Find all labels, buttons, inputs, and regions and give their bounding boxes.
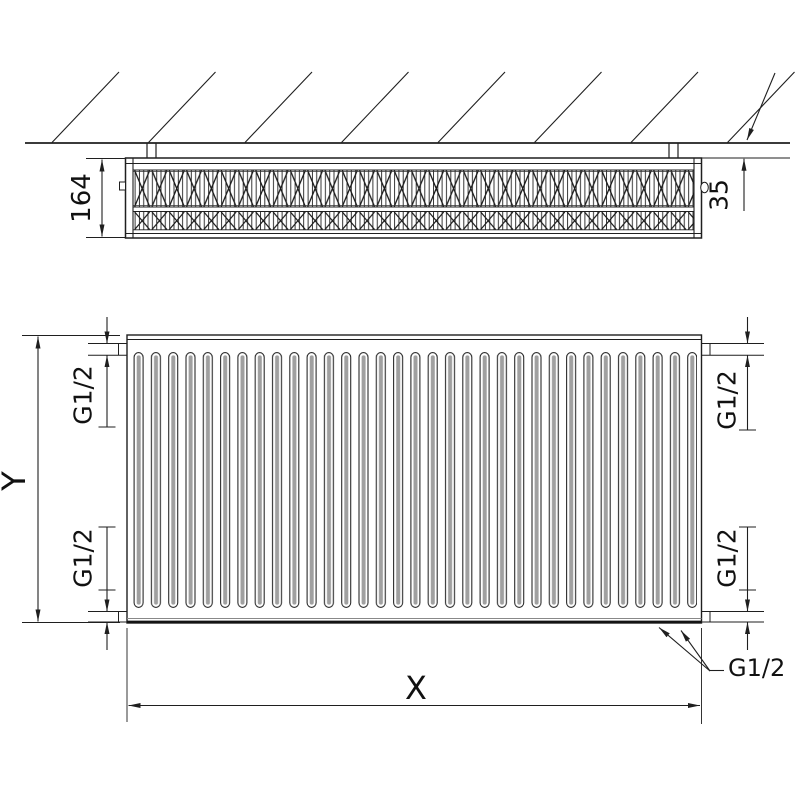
connection-label-top-left: G1/2 (71, 365, 96, 425)
connection-label-bottom-left: G1/2 (71, 528, 96, 588)
connection-label-top-right: G1/2 (715, 370, 740, 430)
fin-row-lower (134, 212, 695, 230)
callout-arrow-2 (681, 631, 710, 672)
radiator-technical-drawing: 164 35 G1/2 G1/2 G1/2 G1/2 Y X G1/2 (0, 0, 800, 800)
radiator-front-panel (127, 335, 702, 623)
bracket-right (669, 143, 678, 158)
wall-clearance-dimension-label: 35 (707, 179, 732, 211)
top-plan-view (25, 72, 795, 238)
connection-label-bottom-right: G1/2 (715, 528, 740, 588)
radiator-plan-body (120, 158, 709, 238)
g12-dimension-top-right (739, 317, 756, 430)
g12-dimension-bottom-right (739, 527, 756, 650)
upper-leader-arrow (747, 73, 775, 140)
callout-arrow-1 (659, 628, 710, 672)
fin-row-upper (134, 171, 695, 207)
stub-bottom-left (88, 612, 127, 623)
wall-brackets (147, 143, 678, 158)
drawing-linework (0, 0, 800, 800)
g12-bottom-connections-callout (659, 628, 724, 672)
wall-section (25, 72, 795, 143)
width-axis-label: X (405, 672, 427, 704)
panel-grooves (134, 352, 698, 608)
stub-top-left (88, 344, 127, 356)
left-plug (120, 182, 126, 190)
bracket-left (147, 143, 156, 158)
g12-dimension-bottom-left (99, 527, 116, 650)
front-elevation-view (22, 317, 764, 724)
stub-bottom-right (702, 612, 765, 623)
depth-dimension-label: 164 (69, 173, 95, 223)
g12-dimension-top-left (99, 317, 116, 427)
wall-hatching (52, 72, 795, 143)
height-axis-label: Y (0, 471, 30, 491)
stub-top-right (702, 344, 765, 356)
connection-callout-label: G1/2 (728, 656, 785, 680)
